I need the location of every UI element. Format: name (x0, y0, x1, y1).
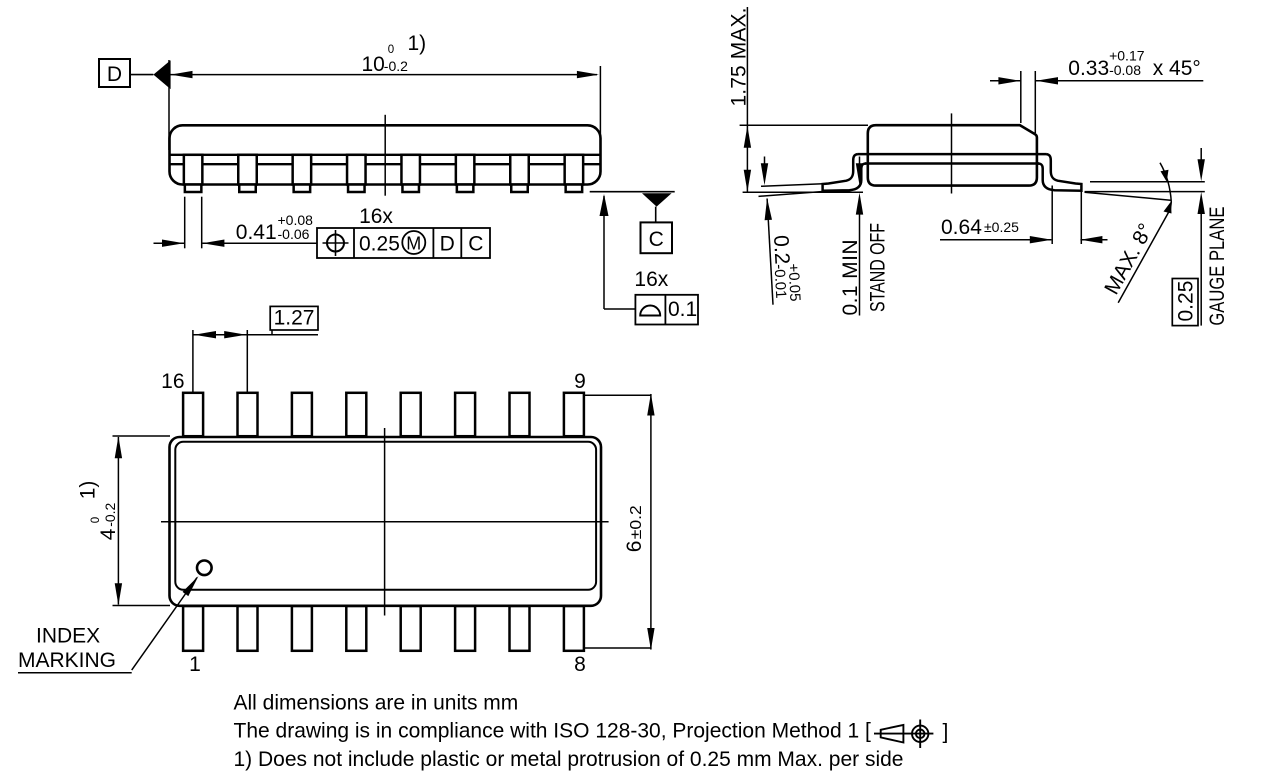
svg-text:0.2: 0.2 (769, 235, 793, 265)
svg-text:STAND OFF: STAND OFF (867, 223, 890, 312)
svg-text:0.25: 0.25 (359, 233, 400, 256)
svg-text:-0.06: -0.06 (278, 226, 310, 242)
svg-text:16x: 16x (359, 205, 393, 228)
svg-text:16x: 16x (634, 268, 668, 291)
svg-text:x 45°: x 45° (1153, 57, 1201, 80)
svg-text:D: D (107, 63, 122, 86)
svg-text:4: 4 (97, 528, 120, 540)
svg-text:-0.2: -0.2 (384, 58, 408, 74)
svg-text:INDEX: INDEX (36, 625, 100, 648)
svg-text:0.41: 0.41 (236, 221, 277, 244)
svg-text:-0.01: -0.01 (771, 264, 790, 299)
svg-text:GAUGE PLANE: GAUGE PLANE (1206, 207, 1229, 326)
svg-text:MARKING: MARKING (18, 649, 116, 672)
svg-text:6: 6 (623, 541, 646, 553)
svg-text:0.33: 0.33 (1068, 57, 1109, 80)
svg-text:The drawing is in compliance w: The drawing is in compliance with ISO 12… (234, 720, 871, 743)
svg-text:-0.08: -0.08 (1109, 62, 1141, 78)
svg-text:1): 1) (408, 32, 427, 55)
svg-text:0.64: 0.64 (941, 216, 982, 239)
svg-text:±0.25: ±0.25 (984, 219, 1019, 235)
svg-text:M: M (406, 233, 421, 253)
svg-text:C: C (649, 228, 664, 251)
svg-text:0: 0 (388, 44, 394, 56)
svg-text:]: ] (943, 721, 949, 744)
svg-text:10: 10 (362, 53, 385, 76)
svg-text:1): 1) (76, 481, 99, 500)
svg-text:1: 1 (189, 653, 201, 676)
svg-text:+0.17: +0.17 (1109, 47, 1145, 63)
svg-text:0.25: 0.25 (1175, 281, 1198, 322)
svg-text:1.27: 1.27 (274, 307, 315, 330)
svg-text:C: C (468, 233, 483, 256)
svg-text:16: 16 (161, 370, 184, 393)
svg-text:9: 9 (574, 370, 586, 393)
svg-text:All dimensions are in units mm: All dimensions are in units mm (234, 692, 519, 715)
svg-text:-0.2: -0.2 (102, 502, 118, 526)
svg-text:0.1 MIN: 0.1 MIN (839, 240, 862, 316)
svg-text:0: 0 (90, 517, 102, 523)
svg-text:8: 8 (574, 653, 586, 676)
svg-text:1) Does not include plastic or: 1) Does not include plastic or metal pro… (234, 748, 904, 771)
svg-text:±0.2: ±0.2 (628, 505, 645, 539)
svg-text:0.1: 0.1 (668, 298, 697, 321)
svg-text:D: D (440, 233, 455, 256)
